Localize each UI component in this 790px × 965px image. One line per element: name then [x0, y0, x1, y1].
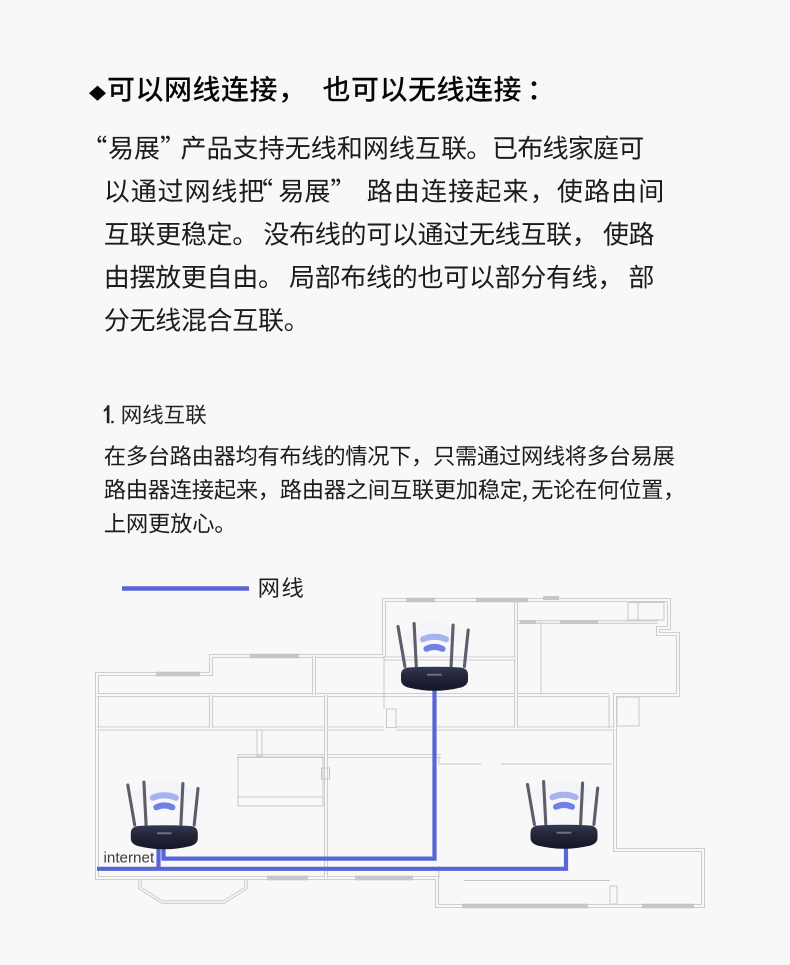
svg-text:internet: internet	[104, 850, 155, 867]
